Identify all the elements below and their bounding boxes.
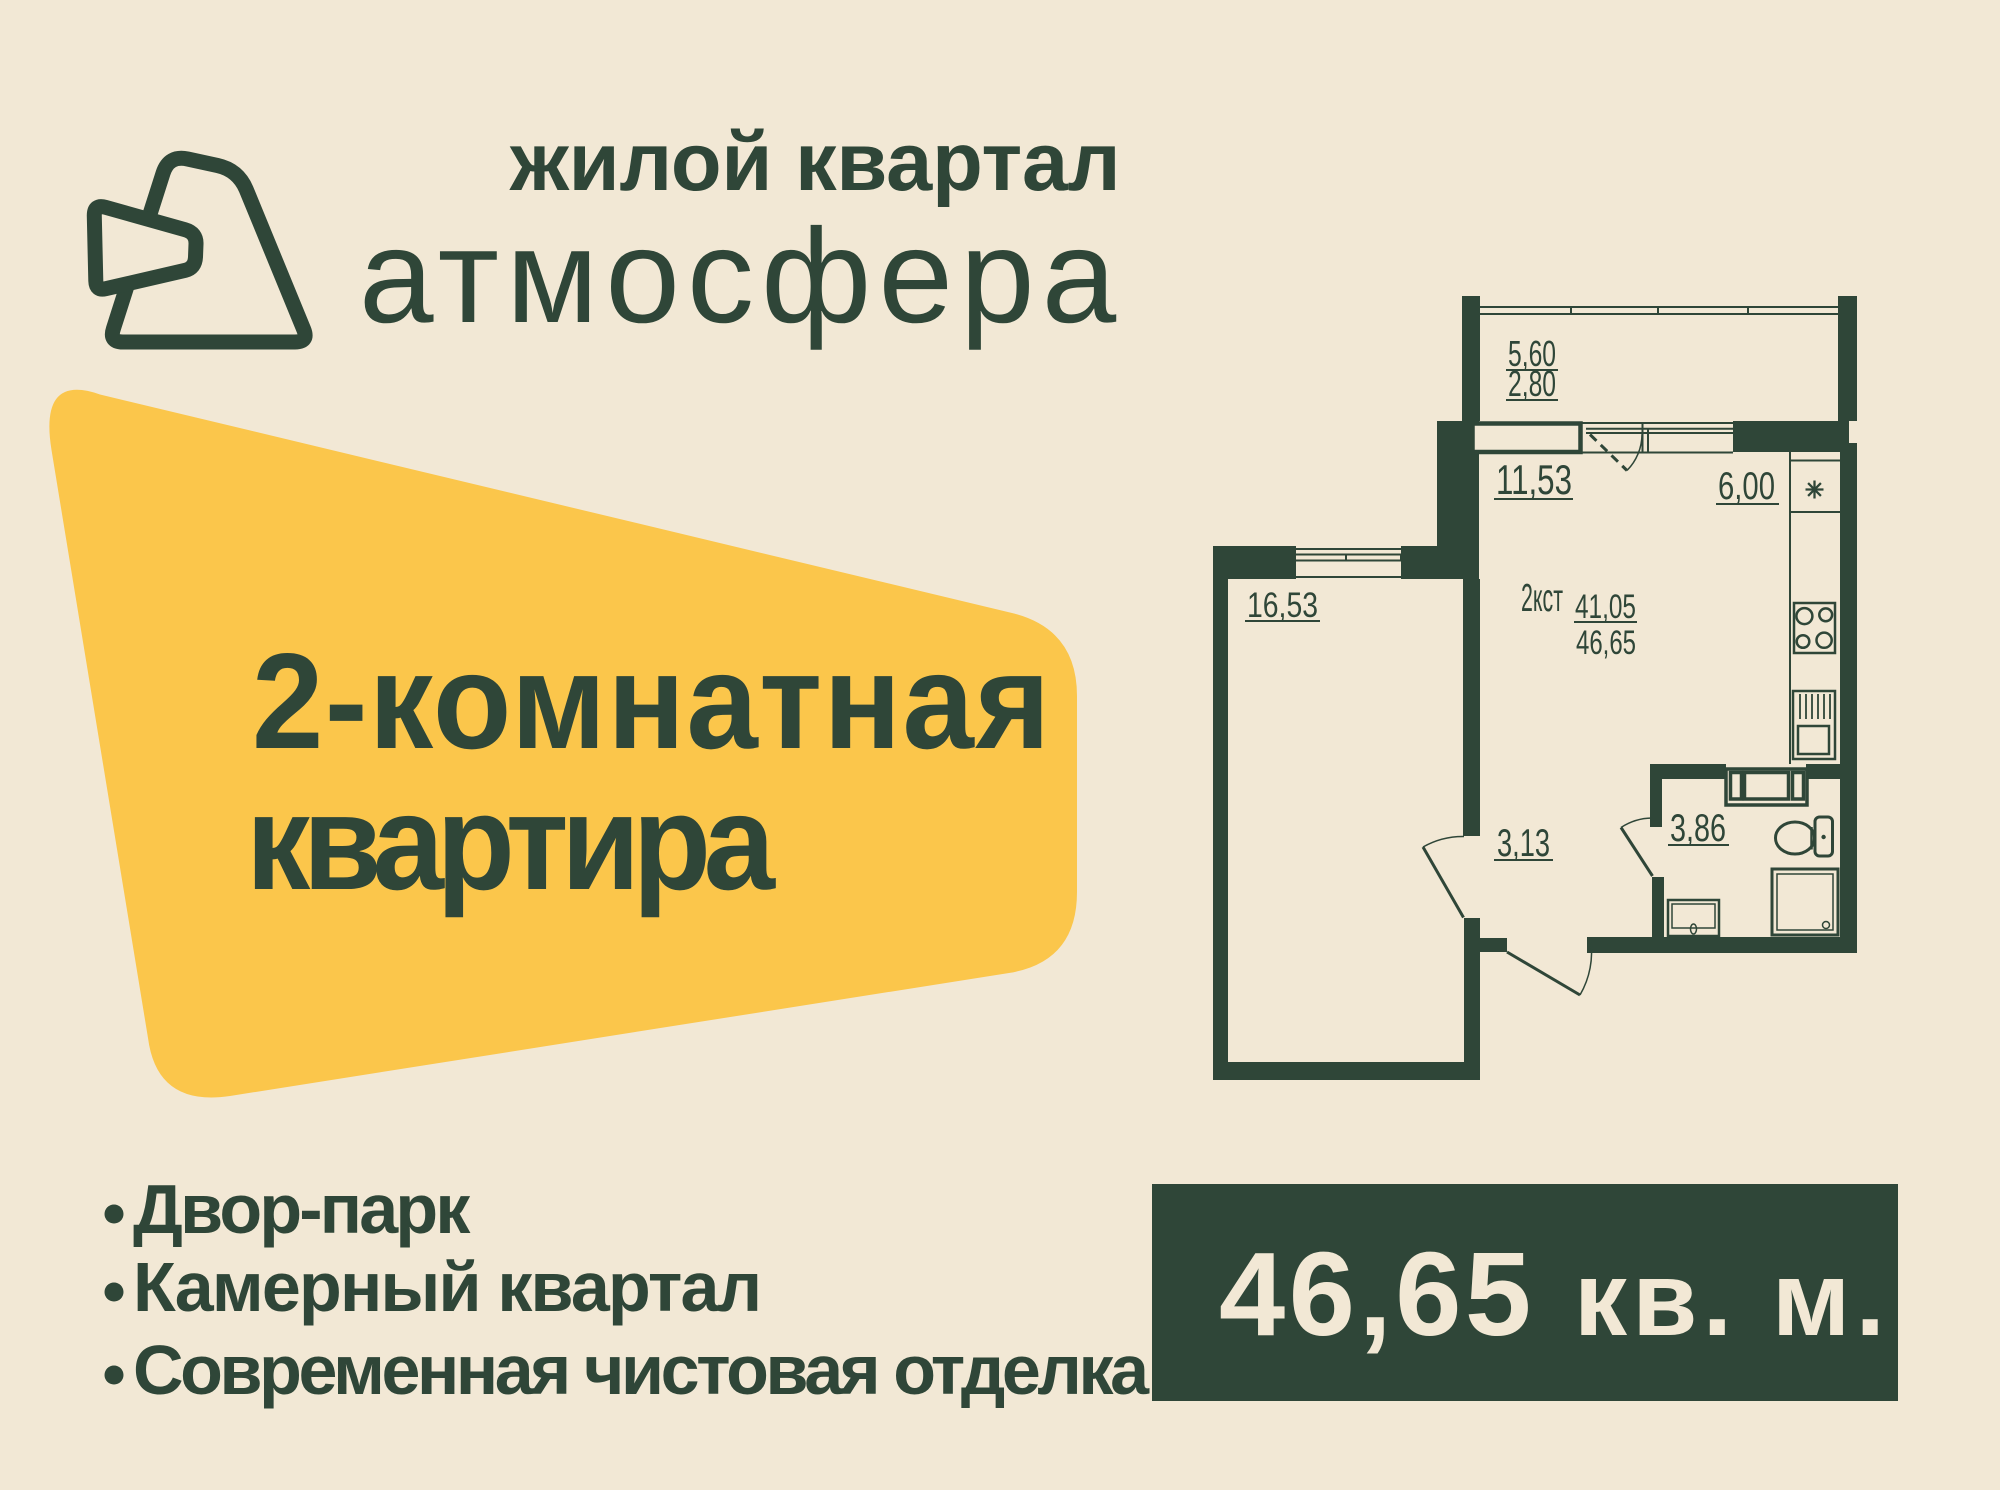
svg-text:41,05: 41,05 — [1575, 588, 1636, 626]
svg-text:3,13: 3,13 — [1497, 822, 1550, 865]
svg-text:46,65: 46,65 — [1576, 624, 1636, 662]
svg-text:жилой квартал: жилой квартал — [509, 115, 1120, 208]
svg-text:6,00: 6,00 — [1718, 465, 1775, 508]
svg-text:3,86: 3,86 — [1670, 807, 1726, 850]
svg-text:46,65: 46,65 — [1219, 1228, 1535, 1361]
svg-text:квартира: квартира — [246, 767, 776, 919]
svg-text:кв. м.: кв. м. — [1574, 1240, 1890, 1358]
svg-text:16,53: 16,53 — [1247, 586, 1318, 625]
svg-text:атмосфера: атмосфера — [359, 202, 1123, 351]
svg-text:2-комнатная: 2-комнатная — [252, 626, 1052, 778]
svg-text:2кст: 2кст — [1521, 577, 1563, 620]
svg-text:2,80: 2,80 — [1508, 363, 1556, 404]
svg-text:11,53: 11,53 — [1496, 456, 1572, 503]
svg-text:Камерный квартал: Камерный квартал — [133, 1248, 760, 1326]
svg-text:Современная чистовая отделка: Современная чистовая отделка — [133, 1331, 1150, 1409]
svg-text:Двор-парк: Двор-парк — [133, 1170, 471, 1248]
